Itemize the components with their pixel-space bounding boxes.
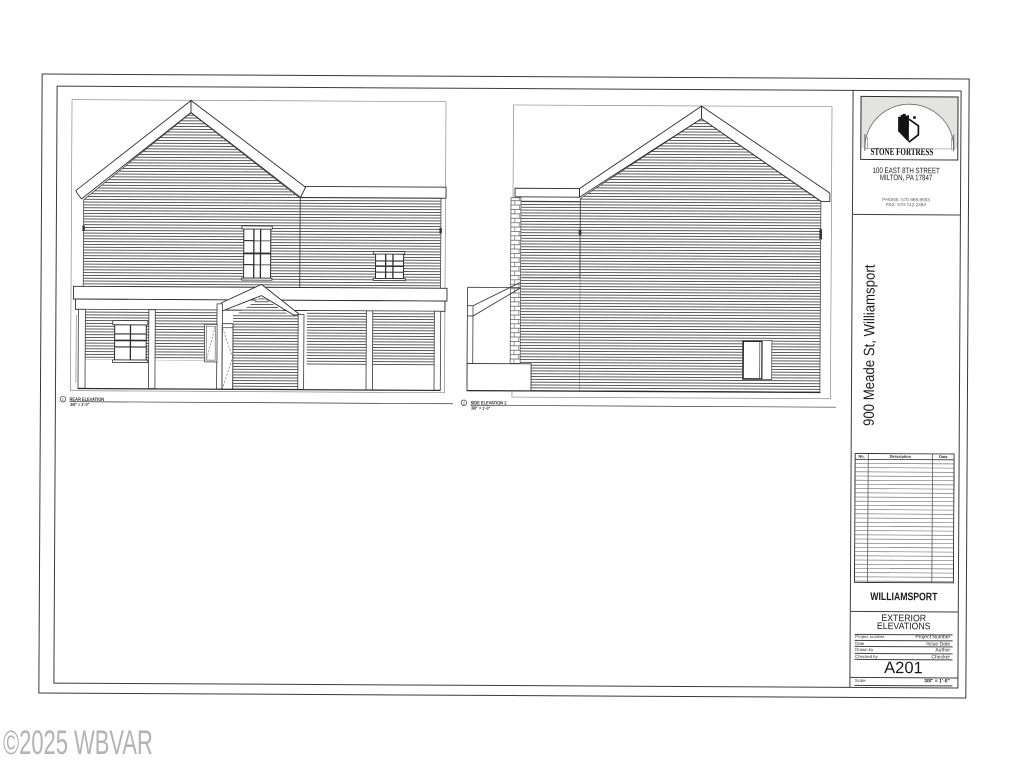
svg-text:1: 1 — [61, 398, 63, 402]
svg-text:No.: No. — [858, 453, 864, 458]
svg-text:Description: Description — [889, 454, 911, 459]
svg-text:3/8" = 1'-0": 3/8" = 1'-0" — [471, 405, 490, 410]
svg-text:STONE FORTRESS: STONE FORTRESS — [870, 145, 933, 157]
svg-text:Date: Date — [939, 454, 948, 459]
svg-text:3/8" = 1'-0": 3/8" = 1'-0" — [70, 401, 89, 406]
svg-text:2: 2 — [462, 401, 464, 405]
